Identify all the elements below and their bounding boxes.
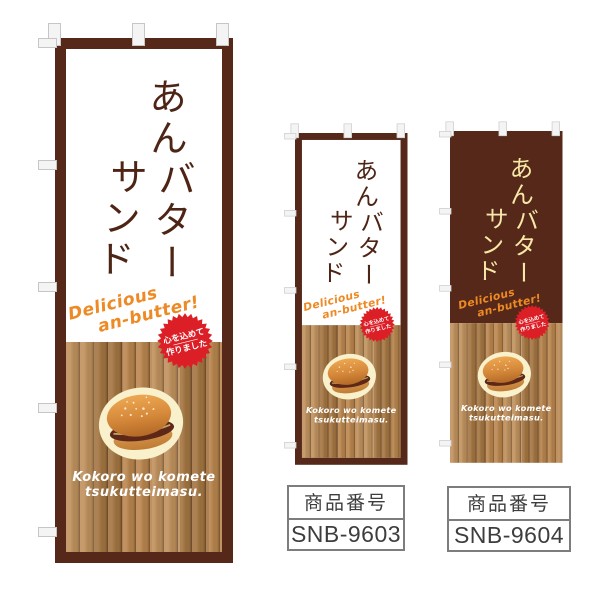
pole-tab [552, 122, 560, 137]
pole-tab [38, 38, 57, 48]
nobori-banner-snb-9603: あんバター サンド Delicious an-butter! 心を込めて 作りま… [295, 133, 407, 465]
product-label-heading: 商品番号 [449, 488, 569, 521]
pole-tab [344, 124, 352, 139]
caption: Kokoro wo komete tsukutteimasu. [295, 406, 407, 425]
caption: Kokoro wo komete tsukutteimasu. [450, 404, 562, 423]
pole-tab [38, 403, 57, 413]
pole-tab [439, 362, 451, 368]
pole-tab [216, 23, 229, 46]
product-label-snb-9604: 商品番号 SNB-9604 [447, 486, 571, 552]
product-label-heading: 商品番号 [289, 487, 403, 520]
nobori-banner-large: あんバター サンド Delicious an-butter! 心を込めて 作りま… [55, 38, 233, 563]
pole-tab [132, 23, 145, 46]
pole-tab [38, 282, 57, 292]
pole-tab [499, 122, 507, 137]
banner-title-column-left: サンド [323, 208, 350, 286]
pole-tab [284, 210, 296, 216]
pole-tab [284, 442, 296, 448]
seal-badge: 心を込めて 作りました [514, 304, 551, 341]
pole-tab [439, 208, 451, 214]
seal-badge: 心を込めて 作りました [359, 306, 396, 343]
pole-tab [38, 527, 57, 537]
caption-line1: Kokoro wo komete [450, 404, 562, 413]
caption-line2: tsukutteimasu. [295, 416, 407, 425]
caption-line1: Kokoro wo komete [55, 470, 233, 485]
pole-tab [284, 287, 296, 293]
banner-title-column-left: サンド [478, 206, 505, 284]
pole-tab [284, 364, 296, 370]
pole-tab [439, 131, 451, 137]
pole-tab [284, 133, 296, 139]
anbutter-bun-image [321, 352, 378, 402]
banner-title-column-right: あんバター [508, 156, 535, 286]
pole-tab [38, 160, 57, 170]
banner-title-column-right: あんバター [147, 77, 189, 282]
pole-tab [439, 285, 451, 291]
product-label-code: SNB-9603 [289, 520, 403, 549]
product-label-snb-9603: 商品番号 SNB-9603 [287, 485, 405, 551]
pole-tab [439, 440, 451, 446]
anbutter-bun-image [96, 384, 186, 463]
banner-title-column-left: サンド [100, 157, 142, 280]
caption-line2: tsukutteimasu. [450, 414, 562, 423]
product-label-code: SNB-9604 [449, 521, 569, 550]
pole-tab [397, 124, 405, 139]
caption: Kokoro wo komete tsukutteimasu. [55, 470, 233, 500]
banner-title-column-right: あんバター [353, 158, 380, 288]
caption-line1: Kokoro wo komete [295, 406, 407, 415]
caption-line2: tsukutteimasu. [55, 485, 233, 500]
seal-badge: 心を込めて 作りました [156, 312, 214, 370]
nobori-banner-snb-9604: あんバター サンド Delicious an-butter! 心を込めて 作りま… [450, 131, 562, 463]
anbutter-bun-image [476, 350, 533, 400]
